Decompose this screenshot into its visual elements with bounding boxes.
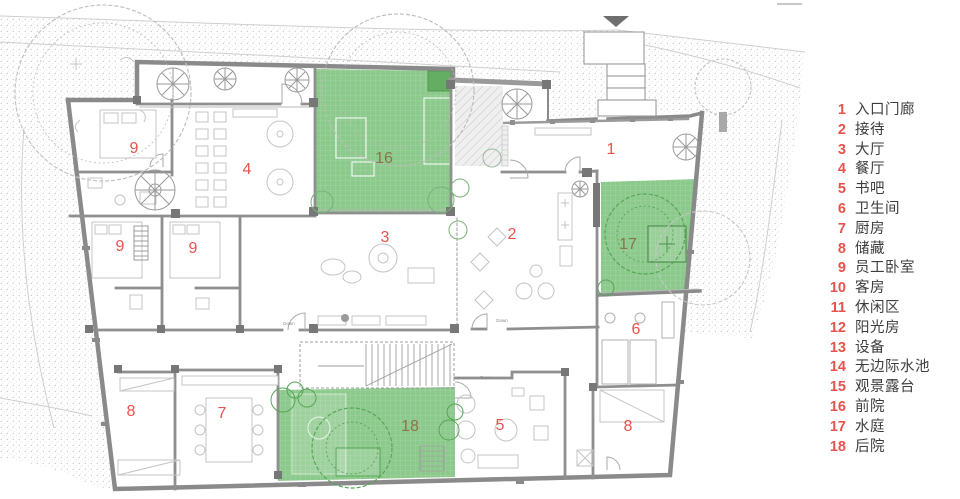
room-label-7: 7	[218, 405, 227, 422]
legend-item-label: 接待	[855, 121, 885, 141]
legend-item-label: 设备	[855, 339, 885, 359]
floor-plan-drawing: 941619932176871858 DownDownDown	[0, 0, 820, 494]
legend-item-number: 15	[822, 378, 846, 398]
legend: 1入口门廊2接待3大厅4餐厅5书吧6卫生间7厨房8储藏9员工卧室10客房11休闲…	[822, 101, 960, 457]
legend-item: 6卫生间	[822, 200, 960, 220]
room-label-3: 3	[381, 229, 390, 246]
room-label-4: 4	[243, 161, 252, 178]
room-label-9: 9	[116, 238, 125, 255]
legend-item: 5书吧	[822, 180, 960, 200]
umbrella-icon	[285, 68, 309, 92]
legend-item-number: 4	[822, 160, 846, 180]
legend-item-label: 大厅	[855, 141, 885, 161]
legend-item: 13设备	[822, 339, 960, 359]
room-label-8: 8	[624, 418, 633, 435]
down-label: Down	[480, 375, 492, 380]
room-label-8: 8	[127, 403, 136, 420]
legend-item: 11休闲区	[822, 299, 960, 319]
spiral-stair-icon	[135, 170, 175, 210]
legend-item: 4餐厅	[822, 160, 960, 180]
down-label: Down	[496, 318, 508, 323]
legend-item-label: 员工卧室	[855, 259, 915, 279]
legend-item-label: 书吧	[855, 180, 885, 200]
legend-item-number: 16	[822, 398, 846, 418]
courtyard-18-back-yard	[278, 387, 455, 481]
legend-item: 1入口门廊	[822, 101, 960, 121]
legend-list: 1入口门廊2接待3大厅4餐厅5书吧6卫生间7厨房8储藏9员工卧室10客房11休闲…	[822, 101, 960, 457]
legend-item: 12阳光房	[822, 319, 960, 339]
legend-item-number: 6	[822, 200, 846, 220]
room-label-6: 6	[632, 321, 641, 338]
room-label-18: 18	[401, 418, 419, 435]
legend-item-label: 厨房	[855, 220, 885, 240]
legend-item-number: 9	[822, 259, 846, 279]
legend-item-label: 客房	[855, 279, 885, 299]
umbrella-icon	[214, 68, 236, 90]
legend-item-label: 餐厅	[855, 160, 885, 180]
legend-item: 2接待	[822, 121, 960, 141]
legend-item-number: 18	[822, 438, 846, 458]
fan-icon	[502, 89, 532, 119]
fan-icon	[673, 134, 699, 160]
legend-item-number: 1	[822, 101, 846, 121]
floor-plan-page: 941619932176871858 DownDownDown 1入口门廊2接待…	[0, 0, 960, 494]
legend-item-label: 阳光房	[855, 319, 900, 339]
legend-item-label: 无边际水池	[855, 358, 930, 378]
fan-icon	[572, 181, 588, 197]
room-label-9: 9	[189, 240, 198, 257]
legend-item-number: 17	[822, 418, 846, 438]
room-label-5: 5	[496, 417, 505, 434]
entrance-marker-icon	[603, 16, 629, 27]
legend-item-number: 8	[822, 240, 846, 260]
room-label-16: 16	[375, 150, 393, 167]
legend-item: 7厨房	[822, 220, 960, 240]
legend-item: 14无边际水池	[822, 358, 960, 378]
umbrella-icon	[157, 68, 189, 100]
legend-item: 3大厅	[822, 141, 960, 161]
legend-item: 16前院	[822, 398, 960, 418]
legend-item: 8储藏	[822, 240, 960, 260]
legend-item-label: 水庭	[855, 418, 885, 438]
legend-item: 17水庭	[822, 418, 960, 438]
legend-item-number: 10	[822, 279, 846, 299]
room-label-2: 2	[508, 226, 517, 243]
legend-item-number: 14	[822, 358, 846, 378]
room-label-1: 1	[607, 141, 616, 158]
legend-item-label: 卫生间	[855, 200, 900, 220]
legend-item: 15观景露台	[822, 378, 960, 398]
courtyard-17-water-court	[601, 179, 697, 295]
room-label-17: 17	[619, 236, 637, 253]
legend-item: 9员工卧室	[822, 259, 960, 279]
legend-item-number: 2	[822, 121, 846, 141]
legend-item-label: 休闲区	[855, 299, 900, 319]
legend-item-number: 3	[822, 141, 846, 161]
legend-item-number: 13	[822, 339, 846, 359]
legend-item-label: 储藏	[855, 240, 885, 260]
legend-item-label: 观景露台	[855, 378, 915, 398]
legend-item: 10客房	[822, 279, 960, 299]
legend-item-label: 前院	[855, 398, 885, 418]
legend-item-number: 7	[822, 220, 846, 240]
legend-item-number: 5	[822, 180, 846, 200]
legend-item-label: 入口门廊	[855, 101, 915, 121]
legend-item: 18后院	[822, 438, 960, 458]
courtyard-16-front-yard	[316, 69, 451, 212]
down-label: Down	[283, 321, 295, 326]
legend-item-number: 11	[822, 299, 846, 319]
legend-item-number: 12	[822, 319, 846, 339]
plan-svg: 941619932176871858 DownDownDown	[0, 0, 820, 494]
legend-item-label: 后院	[855, 438, 885, 458]
room-label-9: 9	[130, 140, 139, 157]
